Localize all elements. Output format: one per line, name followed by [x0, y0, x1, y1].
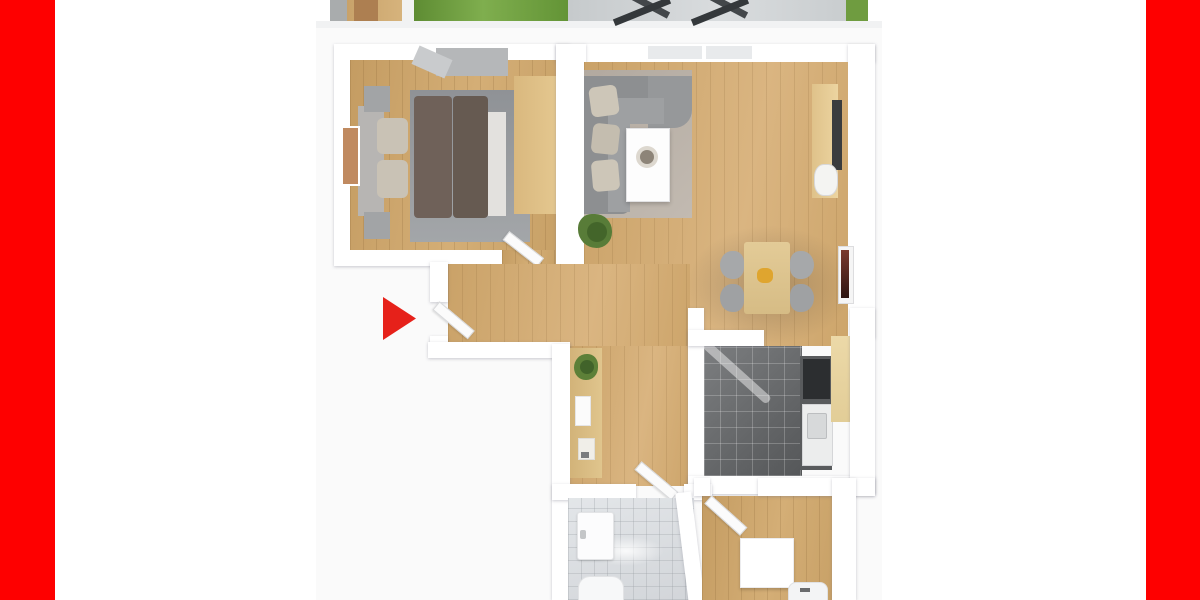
kitchen-top-wall: [688, 330, 764, 346]
garden-grass-left: [414, 0, 568, 21]
bed-duvet-right: [453, 96, 488, 218]
bed-pillow-top: [377, 118, 408, 154]
bath-toilet: [578, 576, 624, 600]
bed-sheet-fold: [488, 112, 506, 216]
desk-chair: [814, 164, 838, 196]
sofa-seat-horizontal: [612, 98, 664, 124]
strip-underedge: [316, 21, 882, 28]
living-window-1: [648, 46, 702, 59]
floorplan-stage: [0, 0, 1200, 600]
nightstand-top: [364, 86, 390, 112]
kitchen-right-wall: [850, 308, 875, 494]
terrace-wall-strip: [330, 0, 347, 21]
kitchen-sink-basin: [807, 413, 827, 439]
dining-chair-4: [790, 284, 814, 312]
living-plant-core: [587, 222, 607, 242]
terrace-door: [354, 0, 378, 21]
smallroom-appliance-detail: [800, 588, 810, 592]
hall-outer-wall-bottom-left: [428, 342, 570, 358]
smallroom-counter: [740, 538, 794, 588]
console-item-detail: [581, 452, 589, 458]
garden-grass-right: [846, 0, 868, 21]
dining-centerpiece: [757, 268, 773, 283]
living-wall-art: [841, 250, 849, 298]
desk-monitor: [832, 100, 842, 170]
dining-chair-3: [790, 251, 814, 279]
dining-chair-2: [720, 284, 744, 312]
smallroom-top-wall-right: [758, 478, 875, 496]
console-plant-core: [580, 360, 594, 374]
kitchen-floor: [704, 346, 802, 476]
hall-west-wall-upper: [430, 262, 448, 302]
smallroom-top-wall-left: [694, 478, 710, 496]
right-red-bar: [1146, 0, 1200, 600]
bedroom-closet: [514, 76, 556, 214]
terrace-wall-edge: [402, 0, 414, 21]
bedroom-wall-art: [341, 126, 360, 186]
bed-pillow-bottom: [377, 160, 408, 198]
smallroom-east-wall: [832, 478, 856, 600]
sofa-pillow-1: [588, 84, 620, 118]
console-papers: [575, 396, 591, 426]
kitchen-counter-wood: [831, 336, 852, 422]
sofa-pillow-3: [591, 159, 621, 192]
bath-sink-faucet: [580, 530, 586, 539]
bed-duvet-left: [414, 96, 452, 218]
left-red-bar: [0, 0, 55, 600]
dining-chair-1: [720, 251, 744, 279]
nightstand-bottom: [364, 212, 390, 239]
hall-floor-upper: [448, 264, 690, 346]
coffee-table-bowl-inner: [640, 150, 654, 164]
sofa-pillow-2: [591, 123, 621, 156]
living-window-2: [706, 46, 752, 59]
kitchen-stove: [803, 359, 830, 399]
